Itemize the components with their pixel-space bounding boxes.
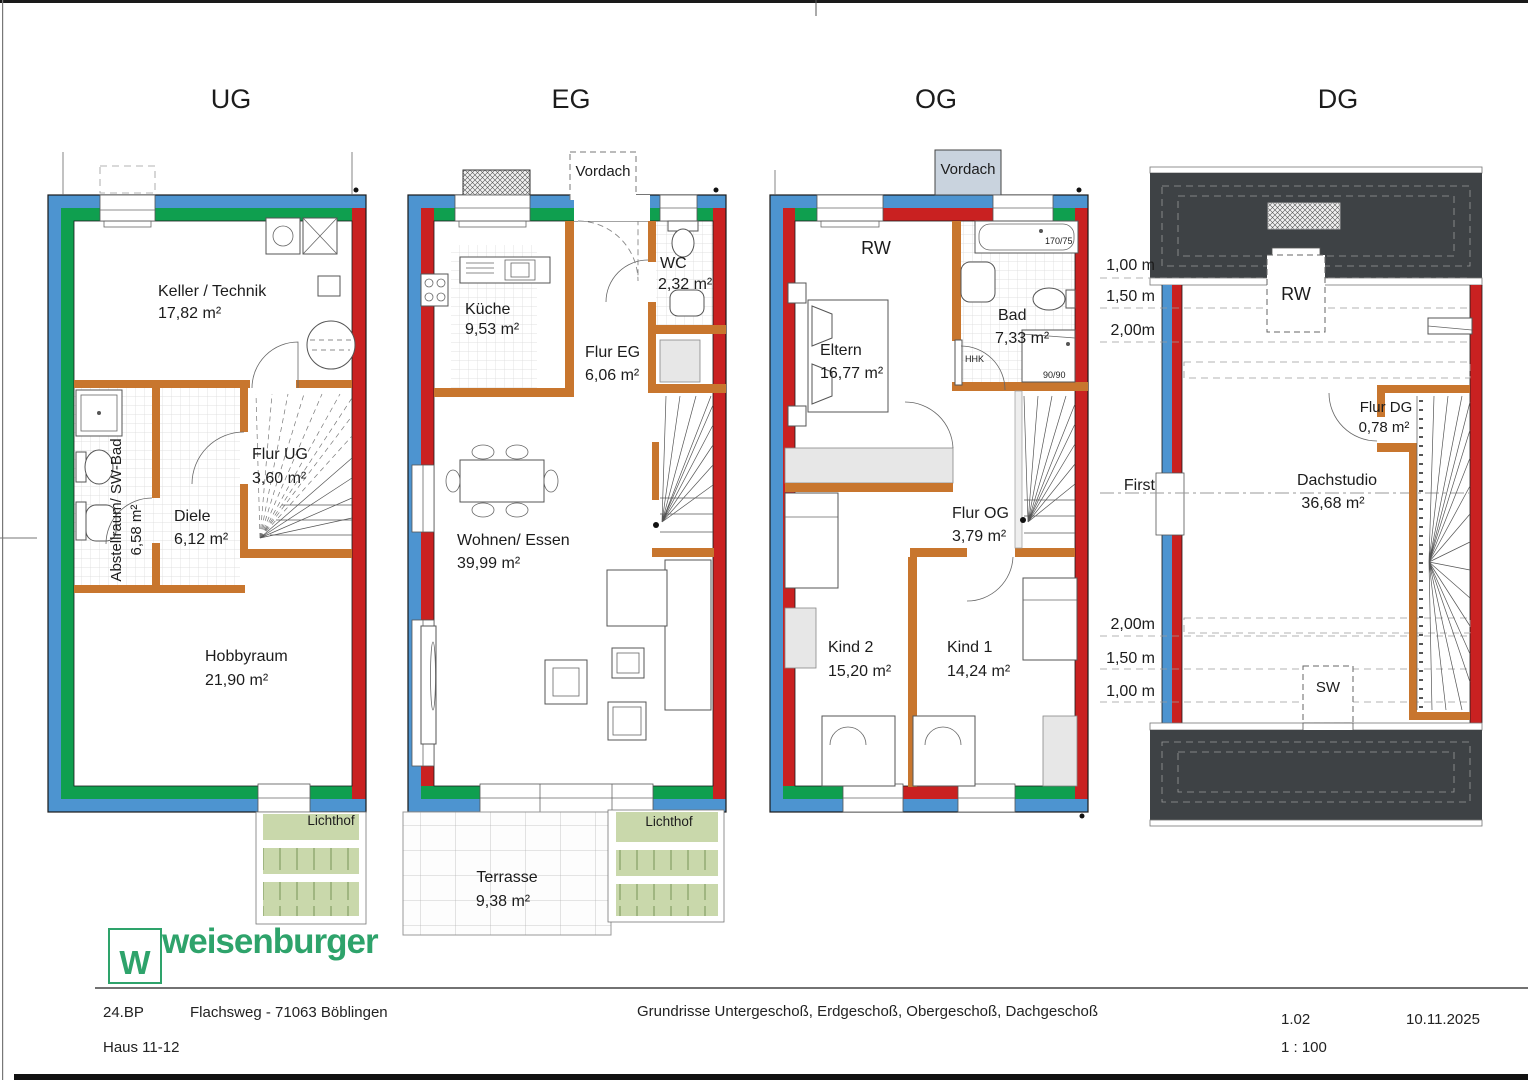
- dg-h200-label: 2,00m: [1111, 322, 1155, 339]
- dg-h150-label: 1,50 m: [1106, 288, 1155, 305]
- eg-hob-icon: [421, 274, 448, 306]
- eg-vordach-label: Vordach: [575, 163, 630, 180]
- ug-flur-area: 3,60 m²: [252, 470, 307, 487]
- title-dg: DG: [1318, 84, 1359, 114]
- eg-tv-board: [421, 626, 436, 744]
- dg-studio-area: 36,68 m²: [1301, 495, 1365, 512]
- ug-washer-icon: [266, 218, 300, 254]
- og-washbasin-icon: [961, 262, 995, 302]
- ug-flur-label: Flur UG: [252, 446, 308, 463]
- ug-shaft-box: [318, 276, 340, 296]
- eg-window-wc: [660, 195, 697, 221]
- ug-keller-label: Keller / Technik: [158, 283, 267, 300]
- dg-h100-label: 1,00 m: [1106, 257, 1155, 274]
- title-ug: UG: [211, 84, 252, 114]
- eg-wc-label: WC: [660, 255, 687, 272]
- og-eltern-label: Eltern: [820, 342, 862, 359]
- project-code: 24.BP: [103, 1004, 144, 1021]
- ug-hobby-area: 21,90 m²: [205, 672, 269, 689]
- eg-wc-door-arc: [606, 260, 648, 302]
- logo-mark-box: W: [108, 928, 162, 984]
- dg-first-label: First: [1124, 477, 1156, 494]
- ug-lightwell-dashed: [100, 166, 155, 193]
- eg-flur-area: 6,06 m²: [585, 367, 640, 384]
- drawing-scale: 1 : 100: [1281, 1039, 1327, 1056]
- eg-entrance-opening: [574, 195, 650, 221]
- og-rw-label: RW: [861, 238, 891, 258]
- og-flur-area: 3,79 m²: [952, 528, 1007, 545]
- ug-lichthof-label: Lichthof: [307, 813, 355, 828]
- dg-shelf: [1428, 318, 1472, 334]
- og-window-bottom-1: [843, 784, 903, 812]
- drawing-date: 10.11.2025: [1406, 1011, 1480, 1028]
- dg-sw-label: SW: [1316, 679, 1341, 696]
- og-eltern-door-arc: [905, 402, 953, 448]
- eg-flur-label: Flur EG: [585, 344, 640, 361]
- eg-wohnen-area: 39,99 m²: [457, 555, 521, 572]
- floor-titles: UG EG OG DG: [211, 84, 1359, 114]
- og-hhk-radiator: [955, 340, 962, 385]
- og-kind2-label: Kind 2: [828, 639, 873, 656]
- eg-lichthof-label: Lichthof: [645, 814, 693, 829]
- eg-shaft-box: [660, 340, 700, 382]
- og-window-bottom-2: [958, 784, 1015, 812]
- ug-boiler-icon: [307, 321, 355, 369]
- ug-keller-door-arc: [252, 342, 298, 388]
- eg-kitchen-counter: [460, 257, 550, 283]
- ug-stair: [256, 394, 352, 538]
- og-bad-label: Bad: [998, 307, 1026, 324]
- sheet-number: 1.02: [1281, 1011, 1310, 1028]
- eg-terrasse: Terrasse 9,38 m²: [403, 812, 611, 935]
- og-window-top-1: [817, 195, 883, 227]
- ug-abstell-label: Abstellraum/ SW-Bad: [108, 438, 125, 581]
- dg-rw-box: RW: [1267, 255, 1325, 332]
- og-tub-size: 170/75: [1045, 236, 1073, 246]
- dg-h200b-label: 2,00m: [1111, 616, 1155, 633]
- ug-window-top: [100, 195, 155, 227]
- og-stair: [1015, 391, 1075, 548]
- og-kind1-door-arc: [967, 557, 1013, 601]
- eg-washbasin-icon: [670, 290, 704, 316]
- dg-studio-label: Dachstudio: [1297, 472, 1377, 489]
- eg-wohnen-label: Wohnen/ Essen: [457, 532, 570, 549]
- dg-flur-area: 0,78 m²: [1359, 419, 1410, 436]
- eg-window-left-1: [412, 465, 434, 532]
- floor-plan-dg: RW SW: [1100, 167, 1482, 826]
- eg-chimney-hatch: [463, 170, 530, 198]
- dg-chimney: [1156, 473, 1184, 535]
- dg-rw-label: RW: [1281, 284, 1311, 304]
- title-og: OG: [915, 84, 957, 114]
- eg-wc-area: 2,32 m²: [658, 276, 713, 293]
- eg-dining-table: [446, 445, 558, 517]
- ug-corner-dot: [354, 188, 359, 193]
- eg-sofa-group: [545, 560, 711, 740]
- eg-stair: [653, 396, 713, 532]
- eg-terrace-door-window: [480, 784, 653, 812]
- floor-plan-ug: Lichthof Keller / Technik 17,82 m² Abste…: [48, 152, 366, 924]
- og-corner-dot-top: [1077, 188, 1082, 193]
- dg-labels: 1,00 m 1,50 m 2,00m 2,00m 1,50 m 1,00 m …: [1106, 257, 1412, 700]
- ug-keller-area: 17,82 m²: [158, 305, 222, 322]
- og-toilet-icon: [1033, 288, 1075, 310]
- eg-vordach: Vordach: [570, 152, 636, 200]
- og-vordach: Vordach: [935, 150, 1001, 195]
- eg-entrance-door-arc: [578, 221, 638, 281]
- og-bad-area: 7,33 m²: [995, 330, 1050, 347]
- eg-lichthof: Lichthof: [608, 810, 724, 922]
- og-eltern-area: 16,77 m²: [820, 365, 884, 382]
- logo-w-icon: W: [119, 944, 150, 981]
- ug-sink-crossed-icon: [303, 218, 337, 254]
- ug-diele-area: 6,12 m²: [174, 531, 229, 548]
- dg-roof-window: [1268, 203, 1340, 229]
- dg-sw-box: SW: [1303, 666, 1353, 723]
- og-hhk-label: HHK: [965, 354, 984, 364]
- ug-window-bottom: [258, 784, 310, 812]
- ug-abstell-area: 6,58 m²: [128, 505, 145, 556]
- ug-diele-label: Diele: [174, 508, 211, 525]
- floor-plan-eg: Vordach: [403, 152, 726, 935]
- og-flur-label: Flur OG: [952, 505, 1009, 522]
- og-corner-dot-bottom: [1080, 814, 1085, 819]
- og-vordach-label: Vordach: [940, 161, 995, 178]
- dg-h100b-label: 1,00 m: [1106, 683, 1155, 700]
- ug-lichthof: Lichthof: [256, 812, 366, 924]
- eg-terrasse-area: 9,38 m²: [476, 893, 531, 910]
- og-kind1-area: 14,24 m²: [947, 663, 1011, 680]
- eg-window-kitchen: [455, 195, 530, 227]
- og-shower-size: 90/90: [1043, 370, 1066, 380]
- drawing-title: Grundrisse Untergeschoß, Erdgeschoß, Obe…: [637, 1003, 1098, 1020]
- ug-hobby-label: Hobbyraum: [205, 648, 288, 665]
- project-address: Flachsweg - 71063 Böblingen: [190, 1004, 388, 1021]
- drawing-sheet: UG EG OG DG: [0, 0, 1528, 1080]
- eg-kueche-area: 9,53 m²: [465, 321, 520, 338]
- house-number: Haus 11-12: [103, 1039, 179, 1056]
- eg-corner-dot: [714, 188, 719, 193]
- floor-plan-og: Vordach: [770, 150, 1088, 819]
- dg-roof-bottom: [1150, 723, 1482, 826]
- dg-flur-label: Flur DG: [1360, 399, 1413, 416]
- title-eg: EG: [551, 84, 590, 114]
- dg-stair: [1417, 396, 1470, 710]
- ug-shower-icon: [76, 390, 122, 436]
- og-kind1-label: Kind 1: [947, 639, 992, 656]
- og-kind2-area: 15,20 m²: [828, 663, 892, 680]
- dg-h150b-label: 1,50 m: [1106, 650, 1155, 667]
- logo-brand-text: weisenburger: [162, 922, 378, 962]
- og-wardrobe: [785, 448, 953, 483]
- eg-kueche-label: Küche: [465, 301, 510, 318]
- floorplan-canvas: UG EG OG DG: [0, 0, 1528, 1080]
- og-kind1-furniture: [913, 578, 1077, 786]
- eg-terrasse-label: Terrasse: [476, 869, 537, 886]
